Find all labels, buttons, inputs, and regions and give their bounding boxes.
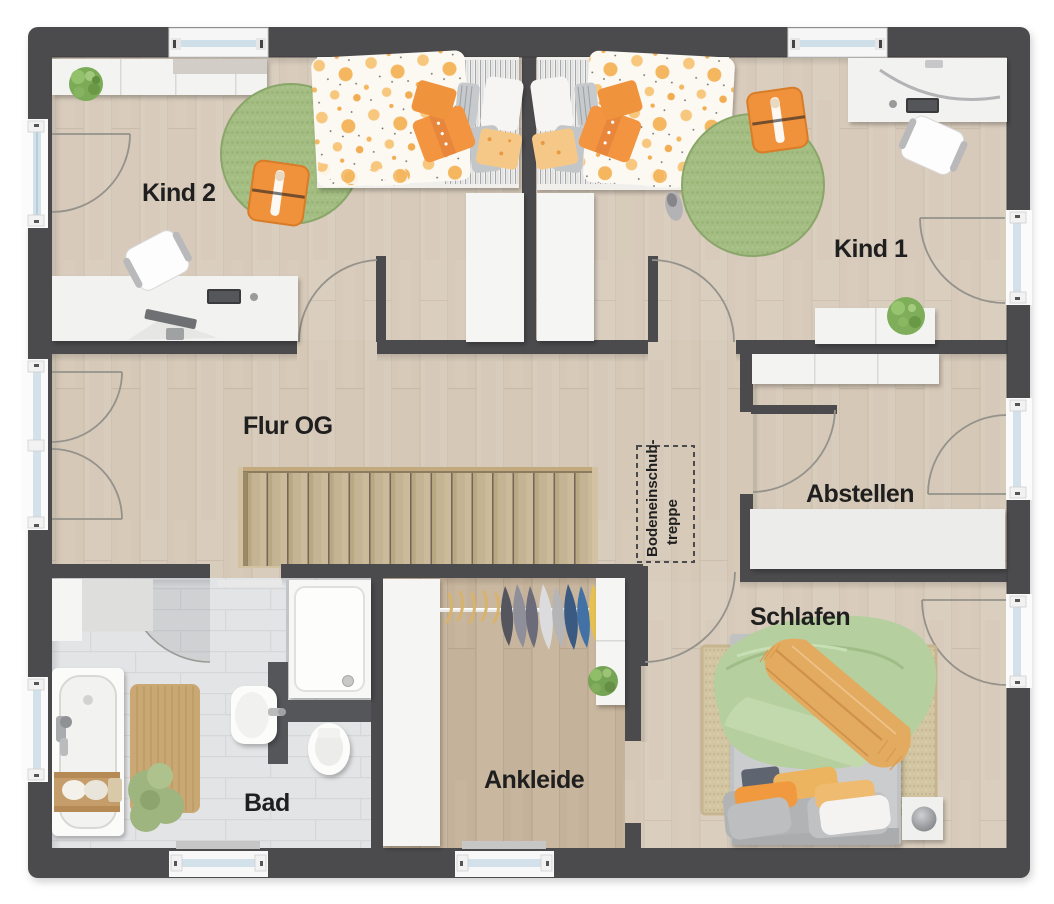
svg-text:Schlafen: Schlafen (750, 603, 850, 631)
svg-text:treppe: treppe (664, 499, 681, 545)
svg-text:Bad: Bad (244, 789, 290, 817)
svg-text:Bodeneinschub-: Bodeneinschub- (644, 439, 661, 557)
svg-text:Kind 1: Kind 1 (834, 235, 908, 263)
svg-text:Flur OG: Flur OG (243, 412, 333, 440)
svg-text:Kind 2: Kind 2 (142, 179, 215, 207)
svg-text:Abstellen: Abstellen (806, 480, 914, 508)
svg-text:Ankleide: Ankleide (484, 766, 585, 794)
